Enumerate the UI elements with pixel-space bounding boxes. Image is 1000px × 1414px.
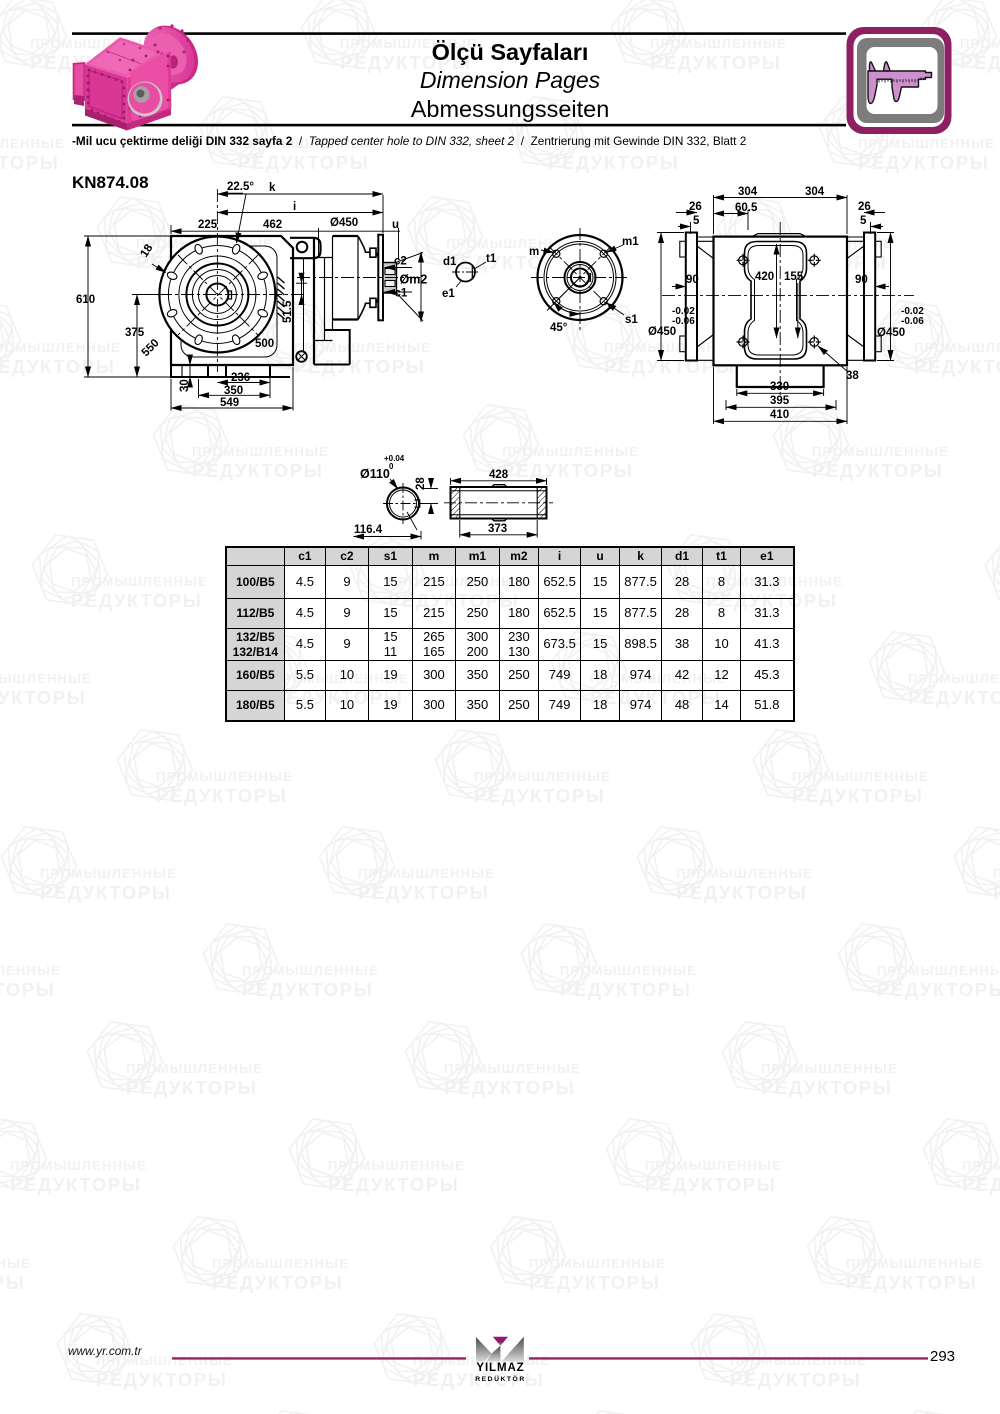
svg-text:-0.06: -0.06 [901,316,924,327]
svg-text:90: 90 [686,274,699,286]
svg-text:22.5°: 22.5° [227,181,254,193]
svg-text:155: 155 [784,271,804,283]
svg-text:s1: s1 [625,314,638,326]
svg-text:500: 500 [255,338,274,350]
svg-text:610: 610 [76,294,95,306]
svg-text:m: m [529,246,539,258]
svg-text:c1: c1 [395,288,408,300]
svg-text:+0.04: +0.04 [384,454,405,463]
svg-text:t1: t1 [486,253,497,265]
svg-text:m1: m1 [622,236,639,248]
svg-text:90: 90 [855,274,868,286]
svg-text:Ø450: Ø450 [877,327,905,339]
svg-text:Ø110: Ø110 [360,467,390,481]
svg-text:60.5: 60.5 [735,202,758,214]
svg-text:30: 30 [179,379,191,392]
svg-text:k: k [269,182,276,194]
svg-text:373: 373 [488,523,507,535]
svg-text:304: 304 [805,186,825,198]
svg-text:Ø450: Ø450 [648,326,676,338]
svg-text:26: 26 [858,201,871,213]
svg-text:26: 26 [689,201,702,213]
svg-text:51.5: 51.5 [282,300,294,323]
svg-text:28: 28 [415,477,427,490]
svg-text:d1: d1 [443,256,457,268]
svg-text:375: 375 [125,327,145,339]
svg-text:225: 225 [198,219,218,231]
svg-text:462: 462 [263,219,282,231]
svg-text:420: 420 [755,271,774,283]
svg-text:c2: c2 [394,256,407,268]
svg-text:410: 410 [770,409,789,421]
svg-text:116.4: 116.4 [354,524,383,536]
svg-text:Øm2: Øm2 [400,273,428,287]
svg-text:i: i [293,201,296,213]
svg-text:395: 395 [770,395,790,407]
svg-text:5: 5 [860,215,867,227]
svg-text:38: 38 [846,370,859,382]
svg-text:330: 330 [770,381,789,393]
svg-text:236: 236 [231,372,250,384]
svg-text:5: 5 [693,215,700,227]
svg-text:550: 550 [140,337,162,359]
svg-text:Ø450: Ø450 [330,217,358,229]
svg-text:45°: 45° [550,322,568,334]
svg-text:350: 350 [224,385,243,397]
svg-text:428: 428 [489,469,509,481]
svg-text:e1: e1 [442,288,455,300]
svg-text:u: u [392,219,399,231]
svg-text:549: 549 [220,397,239,409]
svg-text:304: 304 [738,186,758,198]
